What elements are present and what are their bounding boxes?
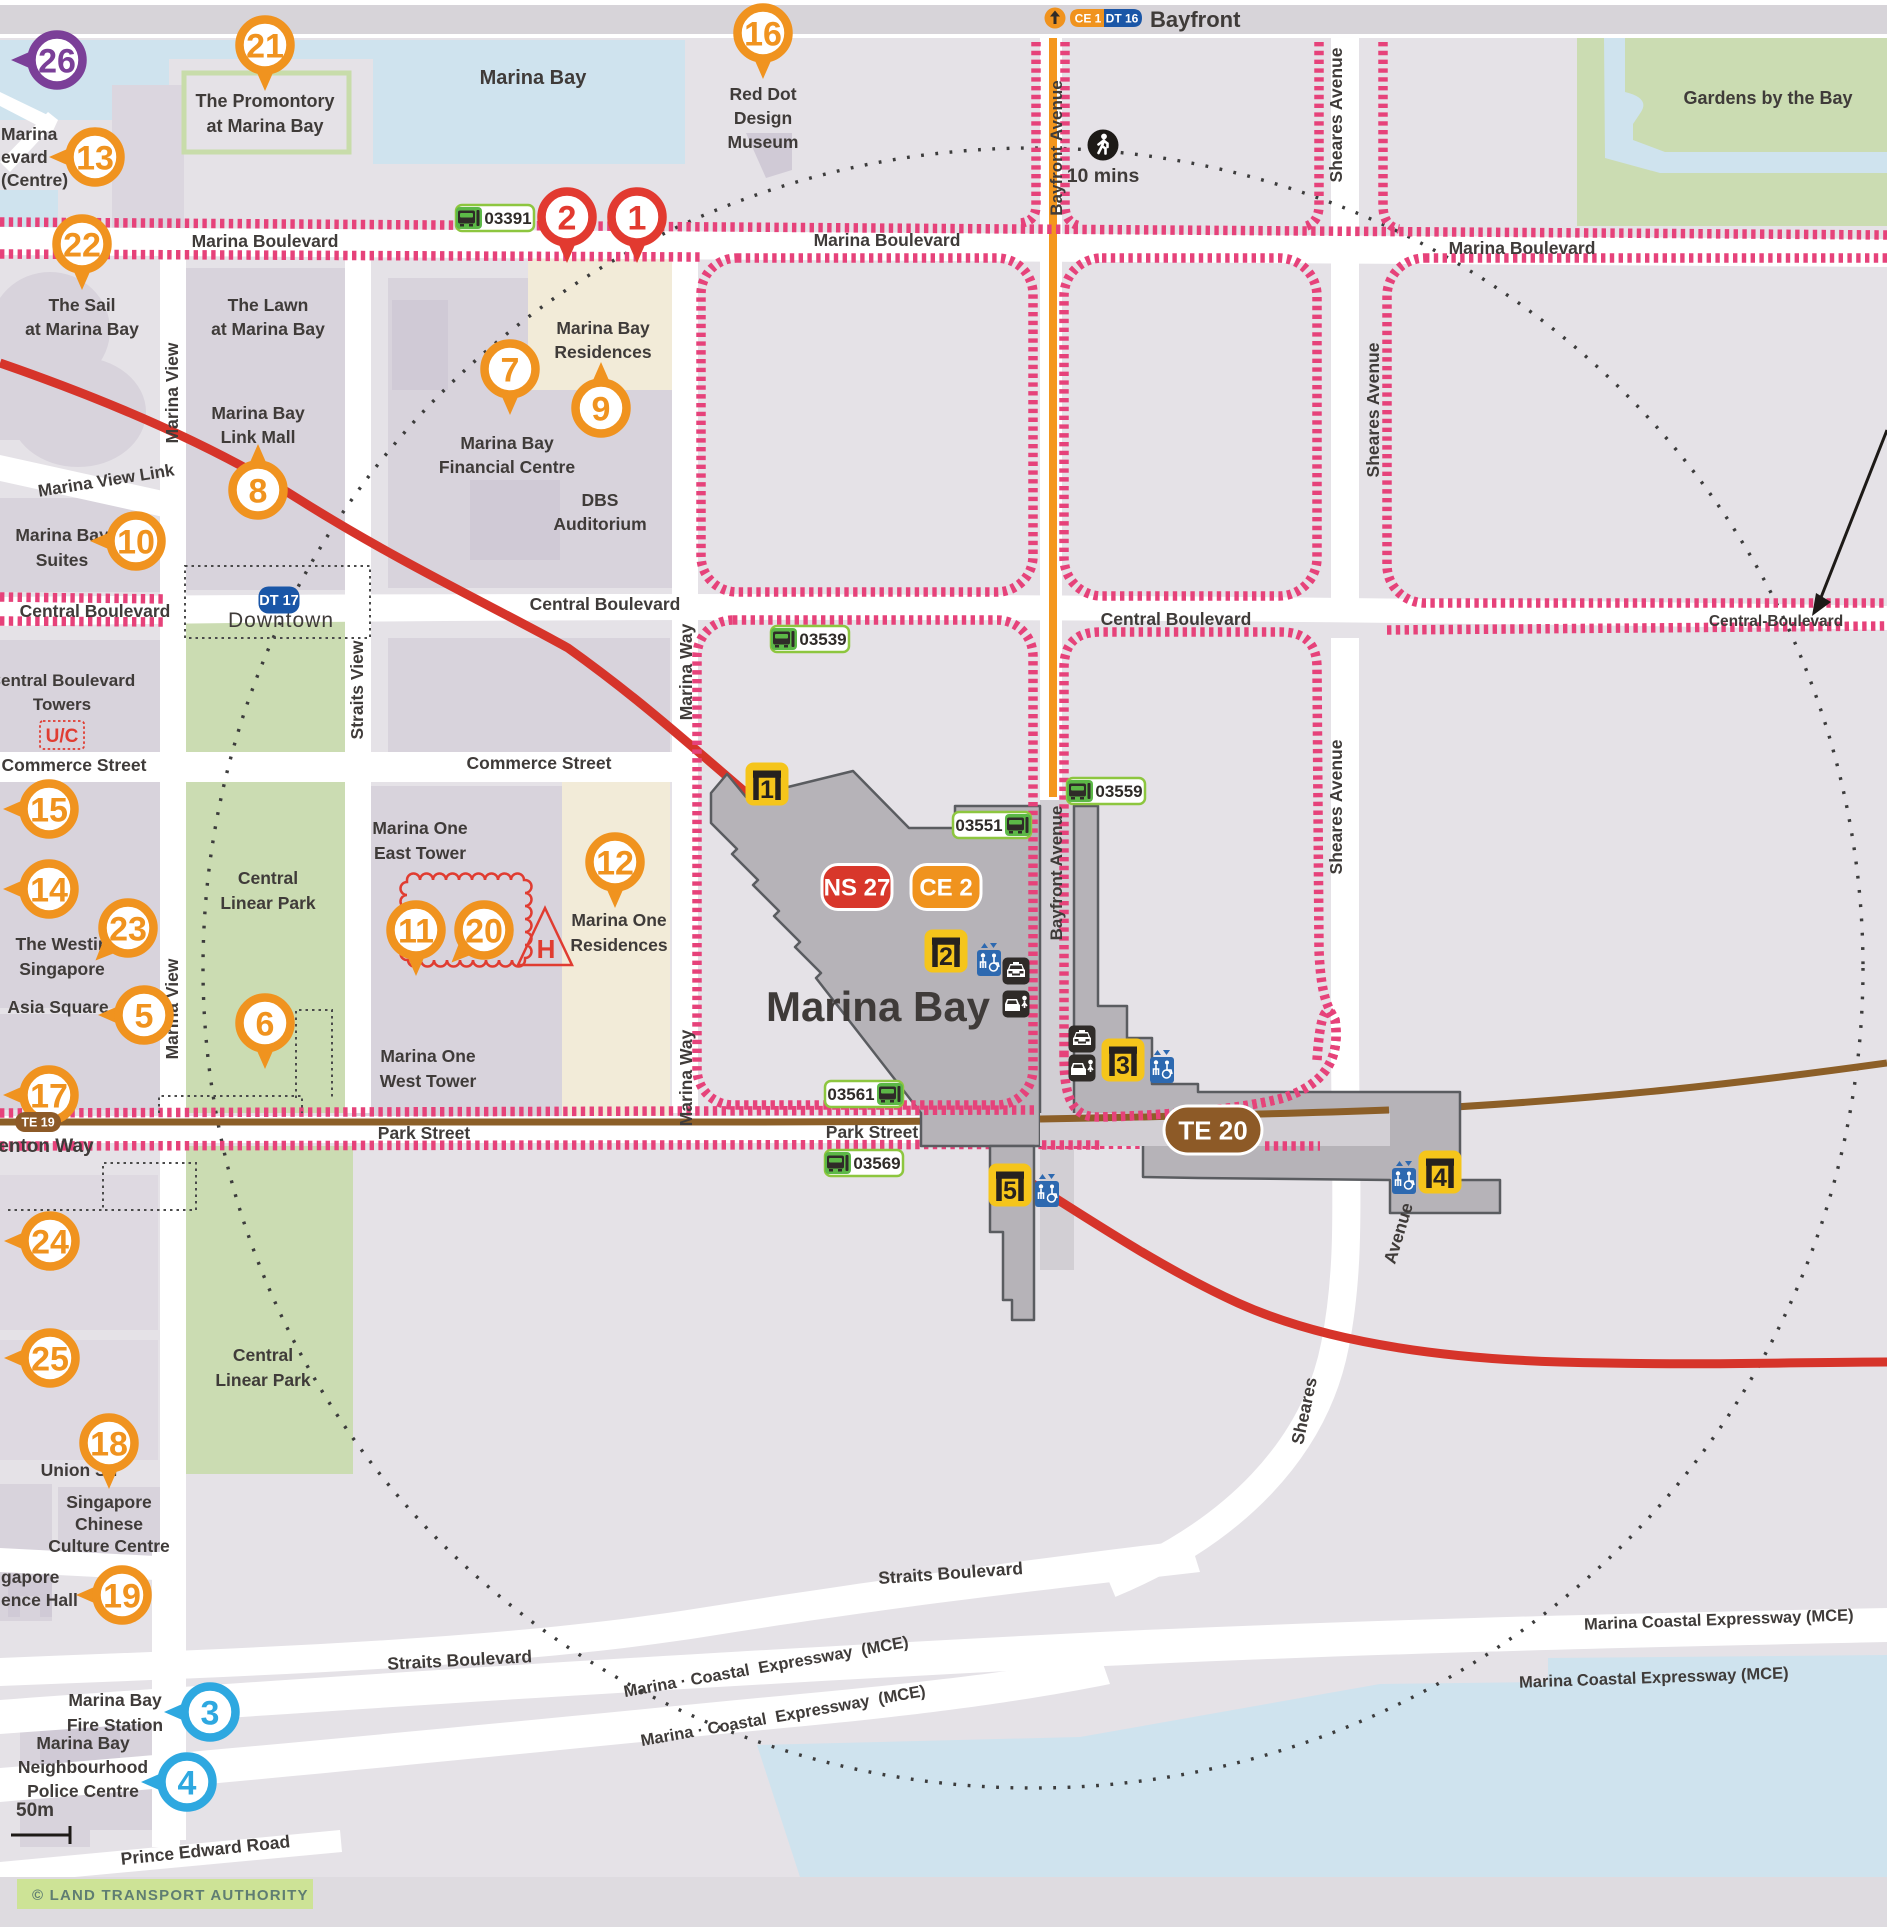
svg-text:20: 20 [465,912,503,950]
svg-text:9: 9 [592,390,611,428]
svg-text:03391: 03391 [484,209,531,228]
svg-text:Neighbourhood: Neighbourhood [18,1757,148,1777]
svg-text:18: 18 [90,1425,128,1463]
svg-text:Design: Design [734,108,792,128]
svg-text:Asia Square: Asia Square [7,997,108,1017]
svg-text:03551: 03551 [955,816,1002,835]
svg-text:Central Boulevard: Central Boulevard [0,671,135,690]
svg-text:10 mins: 10 mins [1067,165,1140,187]
svg-text:Marina: Marina [1,124,58,144]
svg-text:East Tower: East Tower [374,843,466,863]
svg-text:Central Boulevard: Central Boulevard [1101,609,1252,629]
svg-text:23: 23 [109,910,147,948]
svg-text:Sheares Avenue: Sheares Avenue [1326,47,1346,182]
svg-text:Marina Bay: Marina Bay [556,318,650,338]
svg-text:Singapore: Singapore [66,1492,152,1512]
svg-text:Marina Boulevard: Marina Boulevard [192,231,339,251]
svg-text:6: 6 [256,1005,275,1043]
svg-text:The Lawn: The Lawn [228,295,309,315]
svg-text:Singapore: Singapore [19,959,105,979]
svg-text:Police Centre: Police Centre [27,1781,139,1801]
svg-text:Marina Bay: Marina Bay [36,1733,130,1753]
svg-text:03559: 03559 [1095,782,1142,801]
svg-text:Linear Park: Linear Park [220,893,316,913]
svg-text:50m: 50m [16,1800,54,1821]
svg-text:Central: Central [238,868,298,888]
svg-text:5: 5 [135,997,154,1035]
svg-text:Marina Bay: Marina Bay [211,403,305,423]
svg-text:Marina One: Marina One [380,1046,476,1066]
svg-text:25: 25 [31,1340,69,1378]
svg-text:Bayfront Avenue: Bayfront Avenue [1047,806,1066,941]
svg-text:Marina Boulevard: Marina Boulevard [1449,238,1596,258]
svg-text:1: 1 [628,199,647,237]
svg-text:Marina Boulevard: Marina Boulevard [814,230,961,250]
svg-text:Residences: Residences [554,342,652,362]
svg-text:West Tower: West Tower [380,1071,477,1091]
svg-text:Gardens by the Bay: Gardens by the Bay [1683,88,1852,108]
svg-text:13: 13 [76,139,114,177]
svg-text:Marina One: Marina One [372,818,468,838]
svg-text:1: 1 [760,776,774,804]
svg-text:2: 2 [939,943,953,971]
svg-text:26: 26 [38,42,76,80]
svg-text:Marina Bay: Marina Bay [460,433,554,453]
svg-text:Central-Boulevard: Central-Boulevard [1709,613,1843,630]
svg-text:15: 15 [30,791,68,829]
svg-text:Museum: Museum [728,132,799,152]
svg-text:Central Boulevard: Central Boulevard [530,594,681,614]
svg-text:Shenton Way: Shenton Way [0,1136,94,1157]
svg-text:03569: 03569 [853,1154,900,1173]
svg-text:Financial Centre: Financial Centre [439,457,575,477]
svg-text:U/C: U/C [46,726,79,747]
svg-text:4: 4 [1433,1164,1447,1192]
svg-text:17: 17 [30,1077,68,1115]
svg-text:03561: 03561 [827,1085,874,1104]
svg-text:TE 20: TE 20 [1178,1115,1247,1145]
svg-text:Sheares Avenue: Sheares Avenue [1363,342,1383,477]
svg-text:The Promontory: The Promontory [195,91,334,111]
svg-text:(Centre): (Centre) [1,170,68,190]
svg-text:Marina View: Marina View [162,342,182,443]
svg-text:Bayfront Avenue: Bayfront Avenue [1047,80,1066,215]
svg-text:TE 19: TE 19 [21,1116,54,1130]
svg-text:Marina Way: Marina Way [676,623,696,720]
svg-text:Towers: Towers [33,695,91,714]
svg-text:4: 4 [178,1764,197,1802]
svg-text:CE 1: CE 1 [1075,11,1102,25]
svg-text:Marina Bay: Marina Bay [68,1690,162,1710]
svg-text:16: 16 [744,15,782,53]
svg-text:Culture Centre: Culture Centre [48,1536,170,1556]
svg-text:5: 5 [1003,1177,1017,1205]
svg-text:DBS: DBS [582,490,619,510]
svg-text:11: 11 [398,912,434,950]
svg-text:Central: Central [233,1345,293,1365]
svg-text:21: 21 [246,27,284,65]
svg-text:CE 2: CE 2 [919,875,972,902]
svg-text:Fire Station: Fire Station [67,1715,163,1735]
svg-text:Marina Way: Marina Way [676,1029,696,1126]
svg-text:Linear Park: Linear Park [215,1370,311,1390]
svg-text:22: 22 [63,226,101,264]
svg-text:Suites: Suites [36,550,89,570]
svg-text:2: 2 [558,199,577,237]
svg-text:Commerce Street: Commerce Street [467,753,612,773]
svg-text:8: 8 [249,472,268,510]
svg-text:7: 7 [501,351,520,389]
svg-text:12: 12 [596,844,634,882]
svg-text:at Marina Bay: at Marina Bay [211,319,325,339]
svg-text:gapore: gapore [1,1567,60,1587]
svg-text:Marina One: Marina One [571,910,667,930]
svg-text:H: H [537,934,556,964]
svg-text:14: 14 [30,871,68,909]
svg-text:Central Boulevard: Central Boulevard [20,601,171,621]
svg-text:The Sail: The Sail [48,295,115,315]
svg-text:Residences: Residences [570,935,668,955]
svg-text:24: 24 [31,1223,69,1261]
svg-text:ence Hall: ence Hall [1,1590,78,1610]
svg-text:3: 3 [1116,1052,1130,1080]
svg-text:Straits View: Straits View [347,640,367,739]
svg-text:The Westin: The Westin [15,934,108,954]
svg-text:03539: 03539 [799,630,846,649]
svg-text:evard: evard [1,147,48,167]
svg-text:DT 16: DT 16 [1106,11,1139,25]
svg-text:3: 3 [201,1694,220,1732]
svg-text:at Marina Bay: at Marina Bay [25,319,139,339]
svg-text:Auditorium: Auditorium [553,514,646,534]
svg-text:Chinese: Chinese [75,1514,143,1534]
svg-text:10: 10 [117,523,155,561]
svg-text:© LAND TRANSPORT AUTHORITY: © LAND TRANSPORT AUTHORITY [32,1887,309,1904]
svg-text:Marina Bay: Marina Bay [766,983,991,1030]
svg-text:Marina Bay: Marina Bay [480,67,588,89]
svg-text:at Marina Bay: at Marina Bay [206,116,323,136]
svg-text:DT 17: DT 17 [259,593,299,609]
svg-text:19: 19 [103,1577,141,1615]
svg-text:Commerce Street: Commerce Street [2,755,147,775]
svg-text:Park Street: Park Street [826,1122,919,1142]
svg-text:Bayfront: Bayfront [1150,7,1241,32]
svg-text:NS 27: NS 27 [824,875,891,902]
svg-text:Red Dot: Red Dot [729,84,796,104]
svg-text:Park Street: Park Street [378,1123,471,1143]
svg-text:Sheares Avenue: Sheares Avenue [1326,739,1346,874]
